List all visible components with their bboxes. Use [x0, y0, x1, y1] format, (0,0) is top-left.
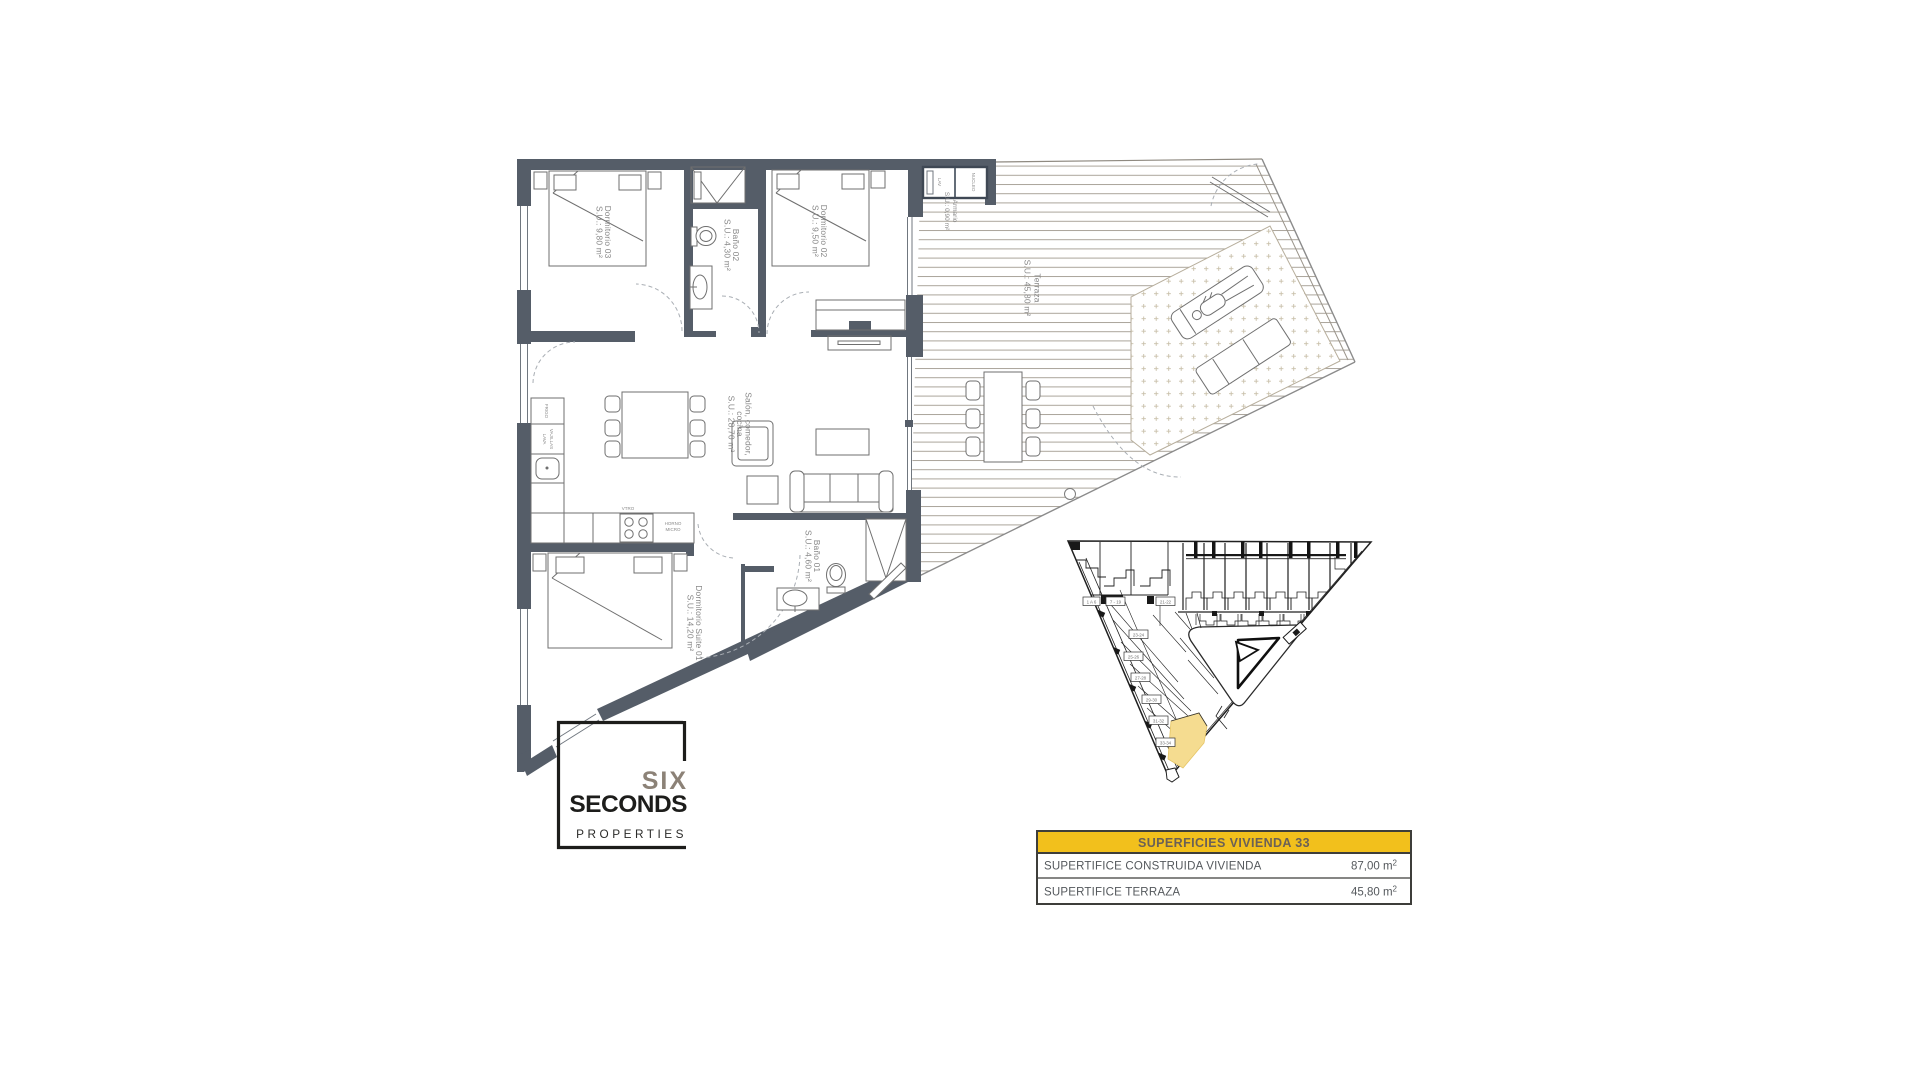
- svg-text:LAV: LAV: [937, 178, 942, 186]
- svg-text:Dormitorio 02S.U.: 9,50 m²: Dormitorio 02S.U.: 9,50 m²: [811, 205, 830, 258]
- svg-text:VAJILLAS: VAJILLAS: [549, 429, 554, 449]
- svg-text:SUPERTIFICE TERRAZA: SUPERTIFICE TERRAZA: [1044, 887, 1180, 899]
- svg-text:NUCLEO: NUCLEO: [971, 173, 976, 192]
- svg-text:PROPERTIES: PROPERTIES: [576, 827, 687, 841]
- svg-text:45,80 m2: 45,80 m2: [1351, 885, 1398, 899]
- svg-text:HORNO: HORNO: [665, 521, 682, 526]
- svg-text:31-32: 31-32: [1153, 719, 1165, 724]
- svg-text:Dormitorio 03S.U.: 9,80 m²: Dormitorio 03S.U.: 9,80 m²: [595, 206, 614, 259]
- svg-text:87,00 m2: 87,00 m2: [1351, 859, 1398, 873]
- svg-text:21-22: 21-22: [1160, 600, 1172, 605]
- svg-text:SECONDS: SECONDS: [569, 791, 687, 818]
- svg-text:MICRO: MICRO: [666, 527, 681, 532]
- svg-text:27-28: 27-28: [1135, 676, 1147, 681]
- svg-text:SUPERFICIES VIVIENDA 33: SUPERFICIES VIVIENDA 33: [1138, 836, 1310, 850]
- svg-text:25-26: 25-26: [1128, 655, 1140, 660]
- svg-text:1 A 6: 1 A 6: [1087, 600, 1097, 605]
- svg-text:FRIGO: FRIGO: [544, 404, 549, 419]
- svg-text:29-30: 29-30: [1146, 698, 1158, 703]
- svg-text:33-34: 33-34: [1160, 741, 1172, 746]
- svg-text:7 - 19: 7 - 19: [1110, 600, 1122, 605]
- svg-text:23-24: 23-24: [1133, 633, 1145, 638]
- svg-text:SUPERTIFICE CONSTRUIDA VIVIEND: SUPERTIFICE CONSTRUIDA VIVIENDA: [1044, 861, 1262, 873]
- svg-text:VTRO: VTRO: [622, 506, 635, 511]
- svg-text:LAVA: LAVA: [542, 434, 547, 445]
- svg-text:Dormitorio Suite 01S.U.: 14,20: Dormitorio Suite 01S.U.: 14,20 m²: [686, 585, 705, 661]
